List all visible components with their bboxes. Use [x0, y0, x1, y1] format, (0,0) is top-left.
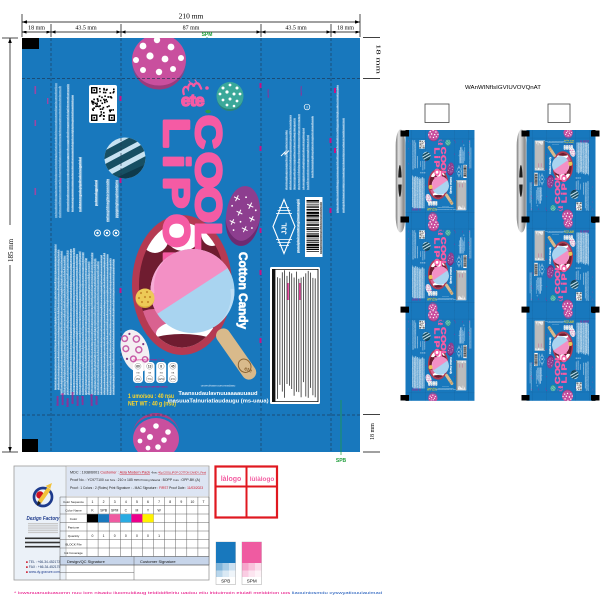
svg-text:0: 0 — [125, 534, 127, 538]
svg-text:9: 9 — [180, 500, 182, 504]
svg-text:5: 5 — [136, 500, 138, 504]
svg-text:M: M — [135, 509, 138, 513]
svg-text:Proof No. : YC97T100 Job: Proof No. : YC97T100 Job Size : 210 x 18… — [70, 478, 201, 482]
svg-text:0: 0 — [136, 534, 138, 538]
svg-text:Customer Signature: Customer Signature — [140, 559, 176, 564]
svg-text:0: 0 — [92, 534, 94, 538]
svg-text:lùlàlogo: lùlàlogo — [250, 476, 275, 483]
svg-text:0: 0 — [114, 534, 116, 538]
svg-text:Color Name: Color Name — [65, 509, 82, 513]
svg-text:43.5 mm: 43.5 mm — [75, 26, 97, 32]
svg-text:18 mm: 18 mm — [337, 26, 354, 32]
svg-text:1: 1 — [103, 534, 105, 538]
svg-text:43.5 mm: 43.5 mm — [285, 26, 307, 32]
svg-text:■ TEL : +66-34-452173: ■ TEL : +66-34-452173 — [26, 560, 60, 564]
svg-text:■ www.dy-gravure.com: ■ www.dy-gravure.com — [26, 570, 60, 574]
svg-text:3: 3 — [114, 500, 116, 504]
svg-text:WAnWINfIsIGVIUVOVQnAT: WAnWINfIsIGVIUVOVQnAT — [465, 85, 542, 91]
svg-text:7: 7 — [158, 500, 160, 504]
svg-text:Ink Coverage: Ink Coverage — [64, 551, 83, 555]
svg-text:185 mm: 185 mm — [7, 238, 15, 262]
svg-text:2: 2 — [103, 500, 105, 504]
svg-text:8: 8 — [169, 500, 171, 504]
svg-text:0: 0 — [147, 534, 149, 538]
svg-text:SPM: SPM — [111, 509, 119, 513]
svg-text:10: 10 — [191, 500, 195, 504]
svg-text:SPB: SPB — [336, 458, 347, 464]
svg-text:Design/QC Signature: Design/QC Signature — [67, 559, 106, 564]
svg-text:4: 4 — [125, 500, 127, 504]
svg-text:T: T — [202, 500, 204, 504]
svg-text:Quantity: Quantity — [68, 534, 80, 538]
svg-text:BLOCK File: BLOCK File — [65, 543, 82, 547]
svg-text:Color: Color — [70, 517, 77, 521]
svg-text:■ FAX : +66-34-452175: ■ FAX : +66-34-452175 — [26, 565, 61, 569]
svg-text:Proof : 1 Colors : 2 (Role: Proof : 1 Colors : 2 (Roles) Print Signa… — [70, 486, 203, 490]
svg-text:* lowsnuanuduasomn nuu lom nis: * lowsnuanuduasomn nuu lom nisadu iluomu… — [14, 591, 382, 595]
svg-text:Pantone: Pantone — [68, 526, 80, 530]
svg-text:làlogo: làlogo — [221, 476, 242, 483]
svg-text:210 mm: 210 mm — [179, 12, 204, 21]
svg-text:SPB: SPB — [100, 509, 108, 513]
svg-text:18 mm: 18 mm — [28, 26, 45, 32]
svg-text:SPM: SPM — [247, 579, 257, 584]
svg-text:18 mm: 18 mm — [375, 44, 382, 74]
svg-text:Color Sequence: Color Sequence — [63, 500, 84, 504]
svg-text:MDC : 1938/6001 Customer : A: MDC : 1938/6001 Customer : Asia Modern P… — [70, 471, 206, 475]
svg-text:18 mm: 18 mm — [370, 423, 376, 440]
svg-text:1: 1 — [158, 534, 160, 538]
svg-text:SPB: SPB — [221, 579, 230, 584]
svg-text:Dezign Factory: Dezign Factory — [27, 516, 61, 522]
svg-text:87 mm: 87 mm — [183, 26, 200, 32]
svg-text:1: 1 — [92, 500, 94, 504]
svg-text:6: 6 — [147, 500, 149, 504]
